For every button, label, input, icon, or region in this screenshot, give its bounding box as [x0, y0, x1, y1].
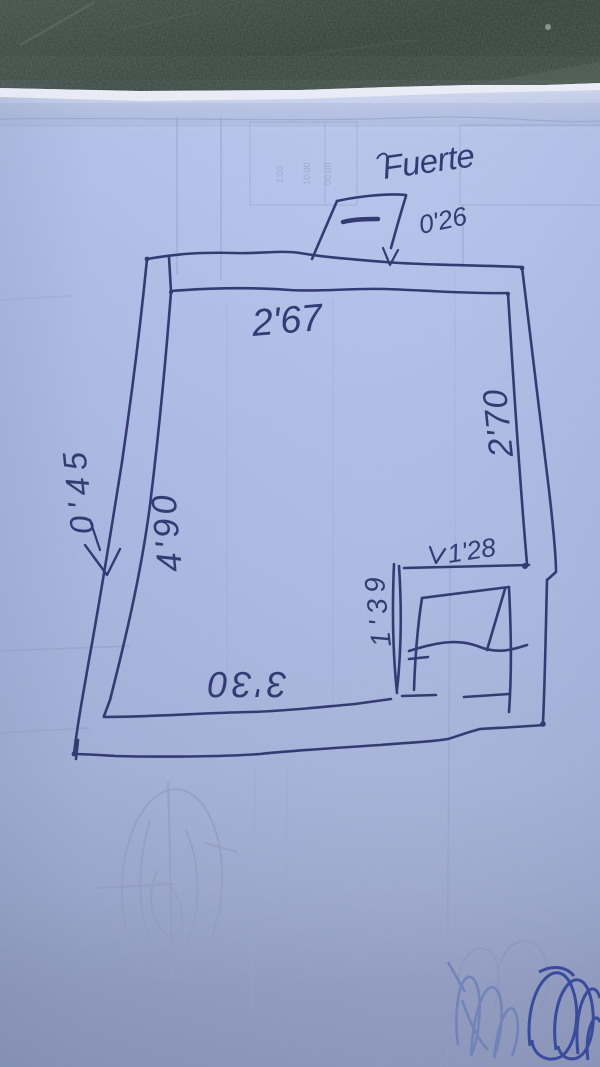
svg-text:4'90: 4'90 [144, 490, 190, 574]
svg-text:3'30: 3'30 [204, 664, 287, 705]
svg-text:00:00: 00:00 [323, 162, 333, 185]
svg-text:1:00: 1:00 [275, 165, 285, 183]
svg-text:2'70: 2'70 [476, 386, 521, 460]
svg-text:2'67: 2'67 [249, 297, 326, 345]
svg-text:10:00: 10:00 [302, 162, 312, 185]
